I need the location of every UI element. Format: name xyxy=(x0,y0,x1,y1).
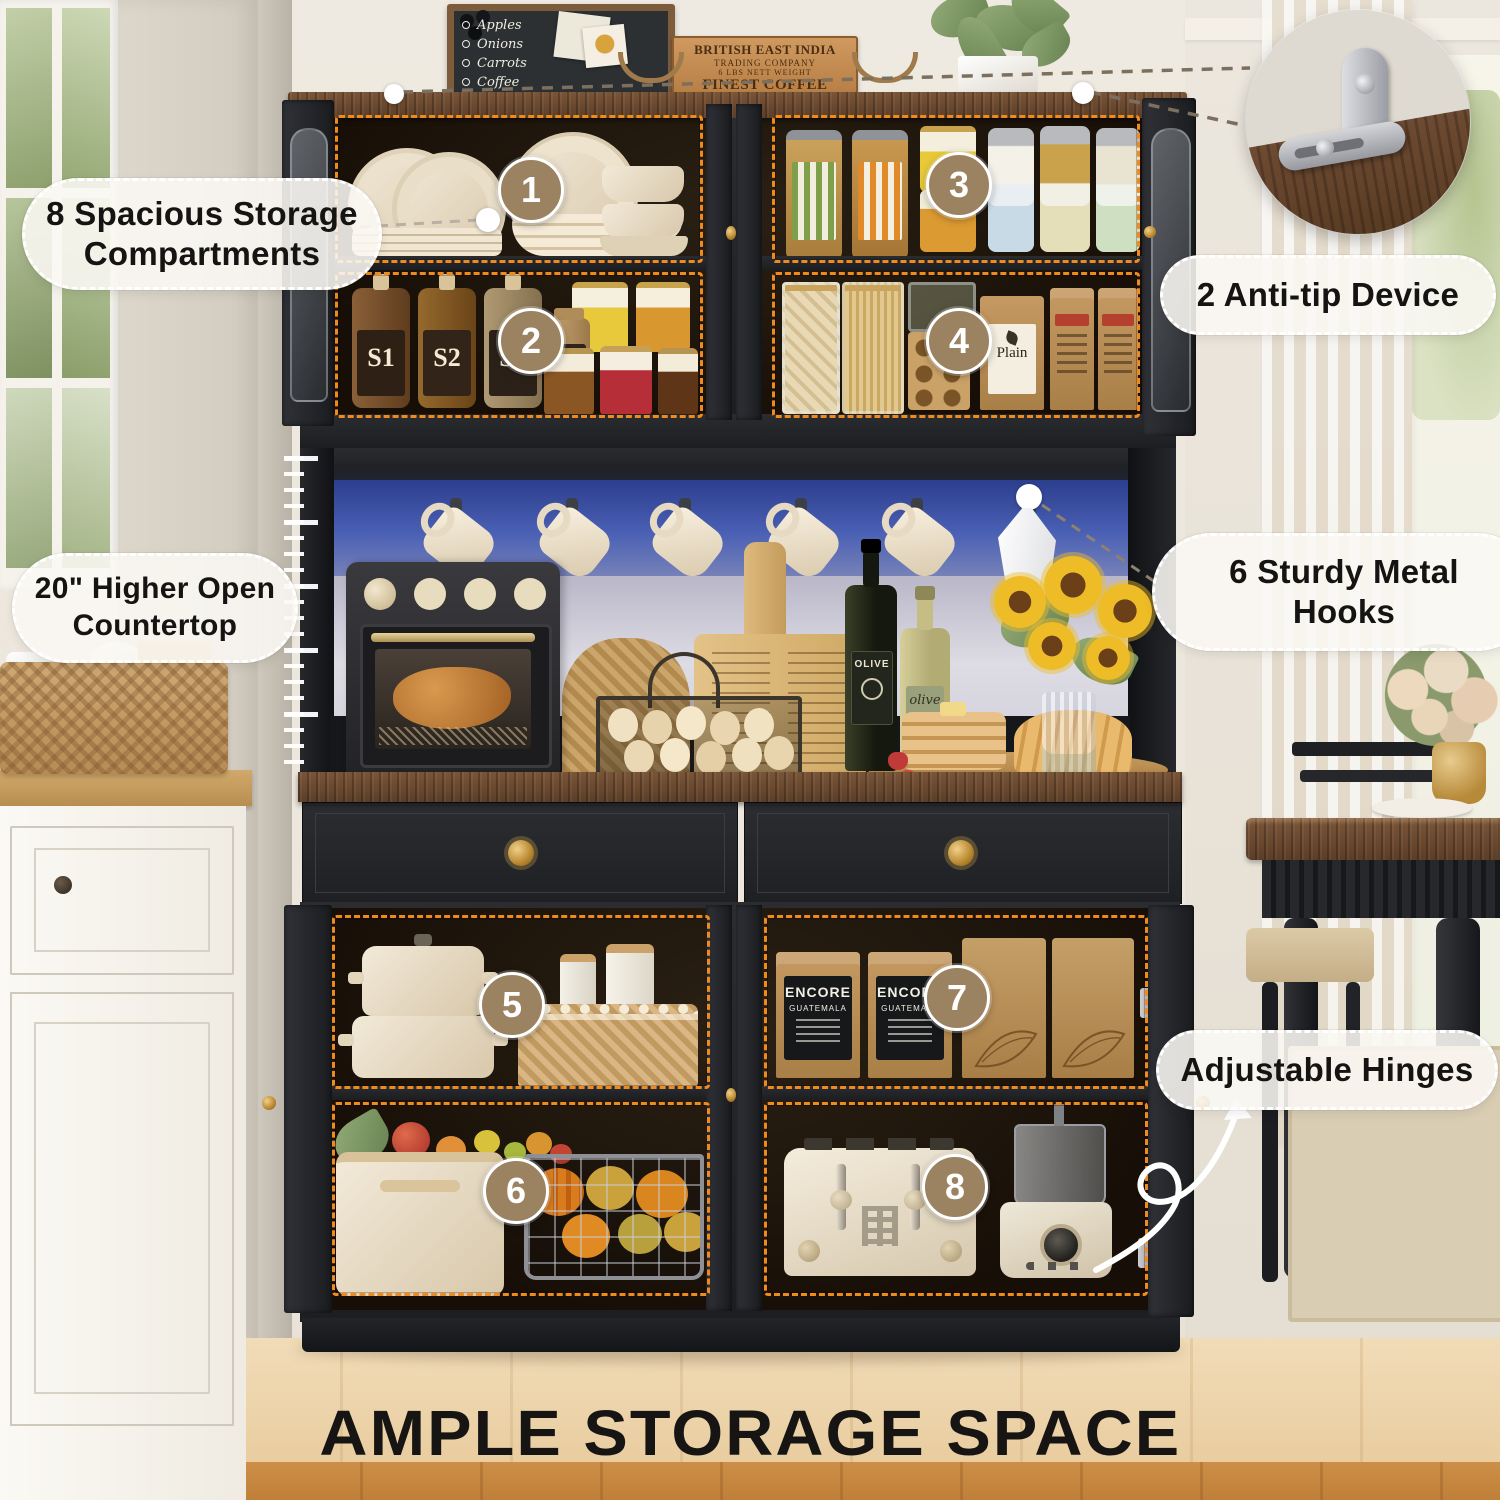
blackboard-list: Apples Onions Carrots Coffee xyxy=(462,16,572,94)
page-title: AMPLE STORAGE SPACE xyxy=(0,1396,1500,1470)
upper-center-door-right xyxy=(736,104,762,420)
marker-5: 5 xyxy=(479,972,545,1038)
door-knob xyxy=(262,1096,276,1110)
left-window-pane xyxy=(62,388,110,568)
marker-number: 3 xyxy=(949,164,969,206)
countertop-slab xyxy=(298,772,1182,802)
antitip-inset-circle xyxy=(1246,10,1470,234)
blackboard-item: Apples xyxy=(477,18,522,33)
bullet-circle xyxy=(462,59,470,67)
callout-text: 20" Higher Open Countertop xyxy=(23,571,287,644)
antitip-anchor-dot xyxy=(1072,82,1094,104)
product-scene: Apples Onions Carrots Coffee BRITISH EAS… xyxy=(0,0,1500,1500)
left-counter-top xyxy=(0,770,252,806)
dining-table-apron xyxy=(1262,860,1500,918)
lower-center-door-right xyxy=(736,905,762,1311)
bullet-circle xyxy=(462,21,470,29)
marker-4: 4 xyxy=(926,308,992,374)
left-window-pane xyxy=(6,388,52,568)
callout-compartments: 8 Spacious Storage Compartments xyxy=(22,178,382,290)
antitip-anchor-dot xyxy=(384,84,404,104)
lower-right-door xyxy=(1148,905,1194,1317)
dining-chair-back xyxy=(1300,770,1446,782)
door-knob xyxy=(726,226,736,240)
air-fryer xyxy=(346,562,560,774)
sunflower xyxy=(994,576,1046,628)
oil-label-text: olive xyxy=(909,693,940,708)
eggs xyxy=(608,708,638,742)
air-fryer-door xyxy=(360,624,552,768)
blackboard-item: Onions xyxy=(477,37,523,52)
callout-text: 6 Sturdy Metal Hooks xyxy=(1179,552,1500,633)
dining-flowers xyxy=(1372,640,1500,750)
bottle-cap xyxy=(861,539,881,553)
marker-2: 2 xyxy=(498,308,564,374)
blackboard-item: Coffee xyxy=(477,75,519,90)
left-window-pane xyxy=(62,8,110,188)
crate-line-2: TRADING COMPANY xyxy=(674,58,856,68)
mesh-tray xyxy=(379,727,527,745)
sunflower xyxy=(1028,622,1076,670)
chair-cushion xyxy=(1246,928,1374,982)
roast-chicken xyxy=(393,667,511,729)
table-dishes xyxy=(1372,798,1472,818)
storage-anchor-dot xyxy=(476,208,500,232)
cabinet-base-plinth xyxy=(302,1318,1180,1352)
blackboard-list-row: Onions xyxy=(462,35,572,54)
callout-text: 8 Spacious Storage Compartments xyxy=(35,194,369,275)
sunflower xyxy=(1044,556,1102,614)
sunflower xyxy=(1086,636,1130,680)
bracket-screw xyxy=(1355,74,1375,94)
callout-hinges: Adjustable Hinges xyxy=(1156,1030,1498,1110)
alcove-header xyxy=(300,446,1176,480)
butter-pat xyxy=(940,702,966,716)
blackboard-list-row: Apples xyxy=(462,16,572,35)
blackboard-list-row: Coffee xyxy=(462,73,572,92)
marker-number: 1 xyxy=(521,169,541,211)
bullet-circle xyxy=(462,78,470,86)
marker-number: 4 xyxy=(949,320,969,362)
marker-1: 1 xyxy=(498,157,564,223)
air-fryer-knob xyxy=(364,578,396,610)
bottle-cap xyxy=(915,586,935,600)
pancake-stack xyxy=(902,712,1006,770)
upper-center-door-left xyxy=(706,104,732,420)
crate-rope-handle xyxy=(852,52,918,83)
blackboard-list-row: Carrots xyxy=(462,54,572,73)
door-knob xyxy=(726,1088,736,1102)
crate-line-3: 6 LBS NETT WEIGHT xyxy=(674,68,856,77)
callout-antitip: 2 Anti-tip Device xyxy=(1160,255,1496,335)
wicker-basket xyxy=(0,662,228,774)
gold-vase xyxy=(1432,742,1486,804)
hook-anchor-dot xyxy=(1016,484,1042,510)
dining-table-top xyxy=(1246,818,1500,860)
oil-label-dark: OLIVE xyxy=(851,651,893,725)
air-fryer-handle xyxy=(371,633,535,642)
marker-number: 2 xyxy=(521,320,541,362)
oil-label-text: OLIVE xyxy=(854,659,889,670)
marker-number: 6 xyxy=(506,1170,526,1212)
blackboard-item: Carrots xyxy=(477,56,527,71)
bottle-neck xyxy=(863,551,879,587)
chair-leg xyxy=(1262,982,1278,1282)
marker-8: 8 xyxy=(922,1154,988,1220)
olive-emblem xyxy=(861,678,883,700)
strawberry-garnish xyxy=(888,752,908,770)
sunflower xyxy=(1098,584,1152,638)
drawer-knob xyxy=(948,840,974,866)
bamboo-board-handle xyxy=(744,542,786,642)
left-counter-drawer-panel xyxy=(34,848,210,952)
marker-number: 8 xyxy=(945,1166,965,1208)
marker-number: 7 xyxy=(947,977,967,1019)
callout-hooks: 6 Sturdy Metal Hooks xyxy=(1152,533,1500,651)
plant-pot xyxy=(958,56,1038,96)
left-counter-knob xyxy=(54,876,72,894)
marker-3: 3 xyxy=(926,152,992,218)
marker-7: 7 xyxy=(924,965,990,1031)
page-title-text: AMPLE STORAGE SPACE xyxy=(319,1396,1181,1470)
drawer-knob xyxy=(508,840,534,866)
marker-6: 6 xyxy=(483,1158,549,1224)
glass-vase xyxy=(1042,692,1096,784)
air-fryer-window xyxy=(375,649,531,749)
left-window-pane xyxy=(6,8,52,188)
callout-countertop: 20" Higher Open Countertop xyxy=(12,553,298,663)
callout-text: Adjustable Hinges xyxy=(1181,1050,1474,1090)
bottle-neck xyxy=(917,598,933,630)
callout-text: 2 Anti-tip Device xyxy=(1197,275,1459,315)
lower-left-door xyxy=(284,905,332,1313)
marker-number: 5 xyxy=(502,984,522,1026)
crate-line-1: BRITISH EAST INDIA xyxy=(674,42,856,58)
bullet-circle xyxy=(462,40,470,48)
left-counter-door-panel xyxy=(34,1022,210,1394)
door-knob xyxy=(1144,226,1156,238)
olive-oil-bottle-dark: OLIVE xyxy=(845,585,897,771)
